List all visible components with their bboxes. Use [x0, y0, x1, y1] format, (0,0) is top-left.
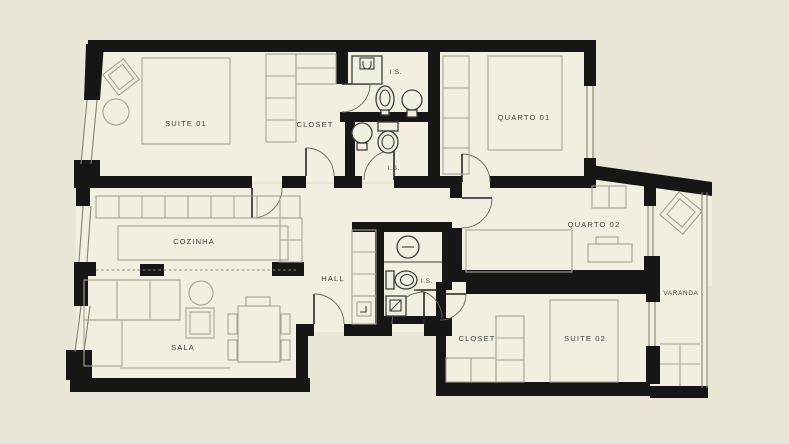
room-label-sala: SALA	[171, 343, 195, 352]
room-label-suite-01: SUITE 01	[165, 119, 207, 128]
toilet-icon	[386, 271, 417, 289]
room-label-closet-02: CLOSET	[459, 334, 496, 343]
room-label-quarto-01: QUARTO 01	[498, 113, 551, 122]
room-label-closet-01: CLOSET	[297, 120, 334, 129]
room-label-varanda: VARANDA	[663, 290, 698, 297]
room-label-cozinha: COZINHA	[173, 237, 215, 246]
room-label-quarto-02: QUARTO 02	[568, 220, 621, 229]
room-label-hall: HALL	[321, 274, 344, 283]
shower-icon	[352, 56, 382, 84]
room-label-is-01: I.S.	[390, 69, 402, 76]
shower-icon	[386, 296, 406, 316]
room-label-suite-02: SUITE 02	[564, 334, 606, 343]
room-label-is-03: I.S.	[421, 278, 433, 285]
floor-plan: SUITE 01 CLOSET I.S. QUARTO 01 I.S. COZI…	[0, 0, 789, 444]
floor-plan-svg: SUITE 01 CLOSET I.S. QUARTO 01 I.S. COZI…	[0, 0, 789, 444]
room-label-is-02: I.S.	[388, 165, 400, 172]
toilet-icon	[378, 122, 398, 153]
